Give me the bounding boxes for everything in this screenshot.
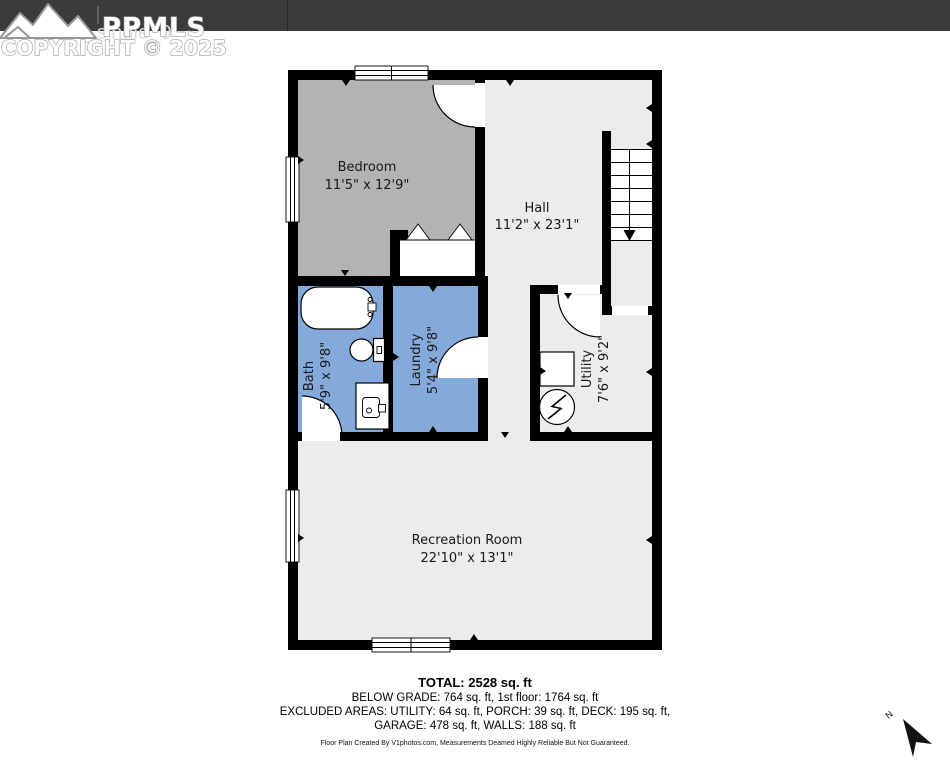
summary-below-grade: BELOW GRADE: 764 sq. ft, 1st floor: 1764… — [0, 691, 950, 705]
bedroom-dimensions: 11'5" x 12'9" — [325, 178, 410, 193]
wall-right — [652, 70, 662, 650]
bedroom-label: Bedroom — [338, 160, 397, 175]
summary-garage-walls: GARAGE: 478 sq. ft, WALLS: 188 sq. ft — [0, 719, 950, 733]
hall-label: Hall — [525, 201, 550, 216]
closet-floor — [398, 240, 475, 276]
bath-dimensions: 5'9" x 9'8" — [319, 342, 334, 410]
wall-top — [288, 70, 662, 80]
water-heater-symbol — [540, 390, 575, 425]
wall-utility-bottom — [530, 432, 662, 441]
window-bedroom-top — [355, 66, 428, 80]
summary-total: TOTAL: 2528 sq. ft — [0, 676, 950, 691]
laundry-label: Laundry — [409, 333, 424, 386]
utility-dimensions: 7'6" x 9'2" — [597, 335, 612, 403]
landing-cased-opening — [612, 306, 648, 315]
copyright-watermark: COPYRIGHT © 2025 — [1, 36, 227, 60]
summary-excluded-areas: EXCLUDED AREAS: UTILITY: 64 sq. ft, PORC… — [0, 705, 950, 719]
toilet-symbol — [350, 339, 385, 362]
bath-label: Bath — [302, 361, 317, 391]
window-recreation-left — [286, 490, 299, 562]
recreation-room-label: Recreation Room — [412, 533, 523, 548]
bath-door-opening — [302, 432, 340, 441]
recreation-room-dimensions: 22'10" x 13'1" — [421, 551, 514, 566]
laundry-dimensions: 5'4" x 9'8" — [426, 326, 441, 394]
ppmls-watermark: PPMLS COPYRIGHT © 2025 — [0, 4, 227, 60]
floor-plan: PPMLS COPYRIGHT © 2025 — [0, 0, 950, 768]
window-bedroom-left — [286, 157, 299, 222]
wall-closet-top — [390, 230, 408, 240]
area-summary: TOTAL: 2528 sq. ft BELOW GRADE: 764 sq. … — [0, 676, 950, 747]
wall-bottom — [288, 640, 662, 650]
sink-vanity-symbol — [356, 383, 389, 429]
utility-label: Utility — [580, 350, 595, 389]
bathtub-symbol — [301, 287, 376, 329]
wall-utility-left — [530, 286, 540, 432]
hall-dimensions: 11'2" x 23'1" — [495, 218, 580, 233]
floorplan-page: floorplan_single_0 PPMLS COPYRIGHT © 202… — [0, 0, 950, 768]
window-recreation-bottom — [372, 638, 450, 652]
laundry-door-opening — [478, 337, 488, 378]
bedroom-door-opening — [475, 83, 485, 127]
wall-stairwell — [602, 131, 611, 315]
wall-bedroom-bottom — [288, 276, 488, 286]
stairs-symbol — [611, 149, 652, 241]
furnace-symbol — [540, 352, 574, 386]
utility-door-opening — [558, 285, 600, 294]
disclaimer: Floor Plan Created By V1photos.com, Meas… — [0, 740, 950, 747]
